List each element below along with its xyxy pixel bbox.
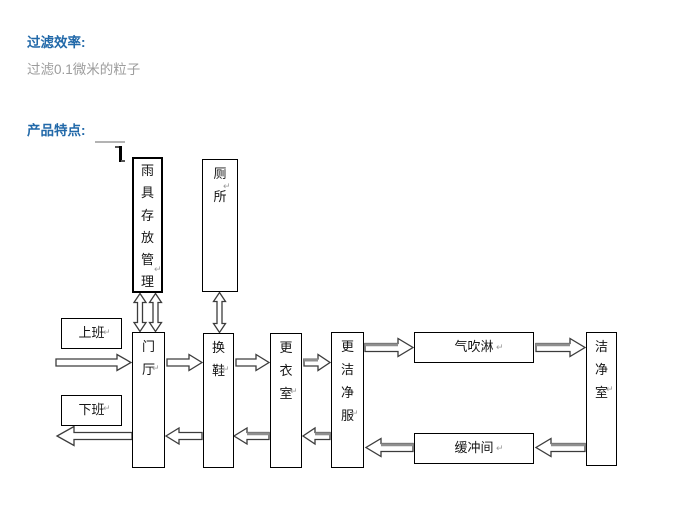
arrow-shoes-to-hall <box>166 428 202 444</box>
arrow-cleanroom-to-buffer <box>536 439 585 457</box>
box-air-shower: 气吹淋 <box>414 332 534 363</box>
paragraph-mark: ↵ <box>222 365 230 374</box>
arrow-hall-to-shoes <box>167 355 202 371</box>
box-label: 缓冲间 <box>415 434 533 461</box>
box-label: 门厅 <box>141 335 156 381</box>
paragraph-mark: ↵ <box>152 364 160 373</box>
box-label: 换鞋 <box>211 336 226 382</box>
box-label: 雨具存放管理 <box>140 160 155 294</box>
paragraph-mark: ↵ <box>606 385 614 394</box>
arrow-toilet-shoes <box>214 293 226 333</box>
box-hall: 门厅 <box>132 332 165 468</box>
box-change-shoes: 换鞋 <box>203 333 234 468</box>
paragraph-mark: ↵ <box>351 409 359 418</box>
page: 过滤效率: 过滤0.1微米的粒子 产品特点: 雨具存放管理 <box>0 0 696 511</box>
box-label: 气吹淋 <box>415 333 533 360</box>
arrow-shoes-to-changing <box>236 355 269 371</box>
paragraph-mark: ↵ <box>496 444 504 453</box>
arrow-raingear-hall-1 <box>134 294 146 332</box>
box-toilet: 厕所 <box>202 159 238 292</box>
box-clean-room: 洁净室 <box>586 332 617 466</box>
paragraph-mark: ↵ <box>223 182 231 191</box>
paragraph-mark: ↵ <box>290 387 298 396</box>
box-work-end: 下班 <box>61 395 122 426</box>
arrow-changing-to-shoes <box>234 428 269 444</box>
paragraph-mark: ↵ <box>103 328 111 337</box>
arrow-raingear-hall-2 <box>150 294 162 332</box>
paragraph-mark: ↵ <box>496 343 504 352</box>
arrow-changing-to-garment <box>304 355 330 371</box>
arrow-airshower-to-cleanroom <box>536 339 585 357</box>
paragraph-mark: ↵ <box>154 265 162 274</box>
box-buffer-room: 缓冲间 <box>414 433 534 464</box>
box-work-start: 上班 <box>61 318 122 349</box>
box-changing-room: 更衣室 <box>270 333 302 468</box>
arrow-garment-to-airshower <box>365 339 413 357</box>
paragraph-mark: ↵ <box>103 404 111 413</box>
arrow-buffer-to-garment <box>366 439 413 457</box>
box-clean-garment: 更洁净服 <box>331 332 364 468</box>
box-label: 下班 <box>62 396 121 423</box>
arrow-garment-to-changing <box>303 428 330 444</box>
box-label: 上班 <box>62 319 121 346</box>
arrow-exit-from-hall <box>57 427 132 446</box>
arrow-entry-to-hall <box>56 355 131 371</box>
